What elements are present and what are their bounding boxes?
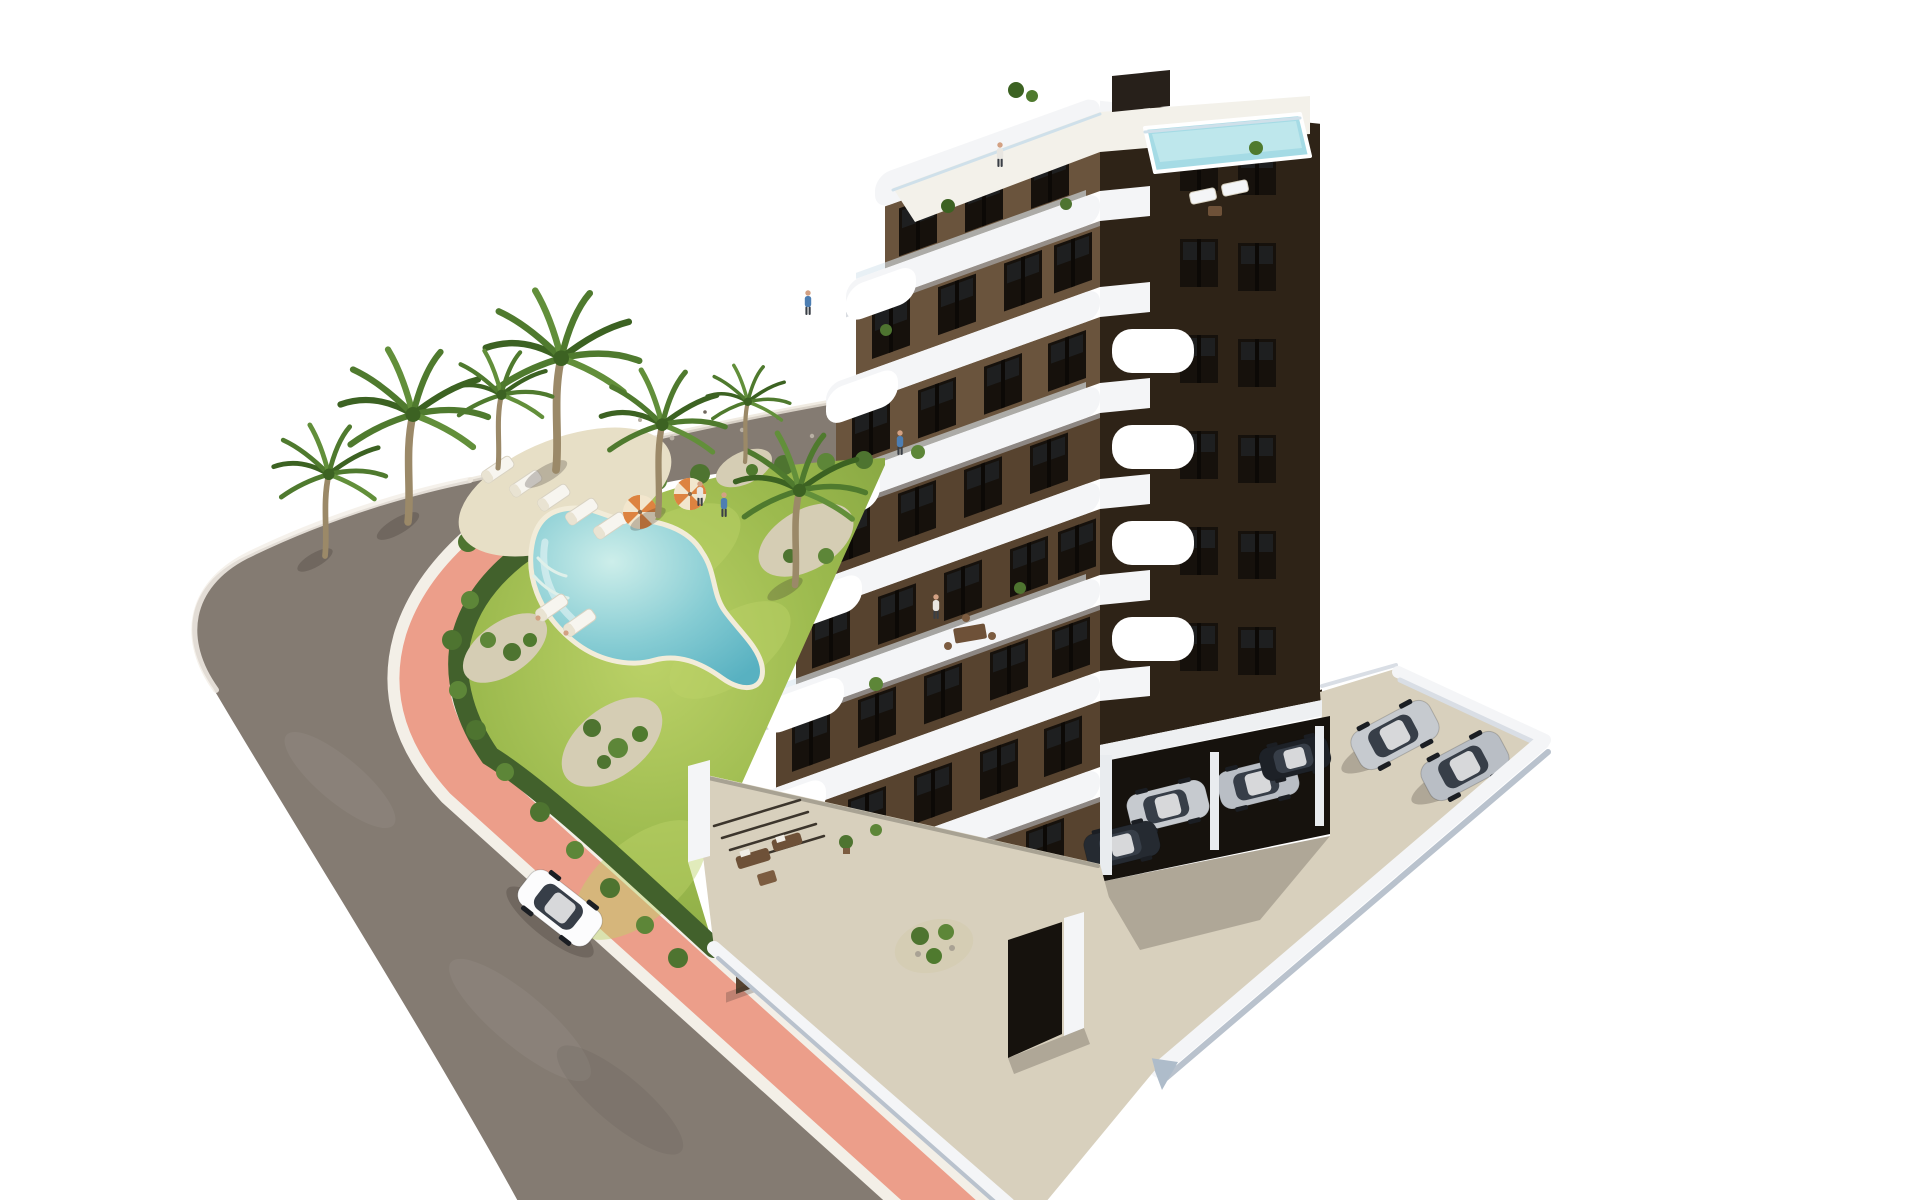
terrace-chair <box>944 642 952 650</box>
roof-equipment-box <box>1112 70 1170 112</box>
entrance-gate <box>1008 922 1062 1058</box>
sunbather-head <box>535 615 540 620</box>
slab-return <box>1100 570 1150 605</box>
render-canvas: Aerial 3D rendering of a modern eight-st… <box>0 0 1920 1200</box>
side-window <box>1238 243 1276 291</box>
slab-return <box>1100 186 1150 221</box>
roof-plant <box>1060 198 1072 210</box>
side-wall-slab <box>1320 70 1398 690</box>
plant-pot <box>843 848 850 854</box>
balcony-plant <box>880 324 892 336</box>
rock <box>915 951 921 957</box>
curved-side-balcony <box>1112 521 1194 565</box>
terrace-parapet <box>782 303 840 346</box>
balcony-plant <box>911 445 925 459</box>
curved-side-balcony <box>1112 617 1194 661</box>
side-window <box>1238 627 1276 675</box>
side-window <box>1180 239 1218 287</box>
gate-pillar <box>1064 912 1084 1036</box>
roof-table <box>1208 206 1222 216</box>
side-window <box>1238 339 1276 387</box>
terrace-side-wall <box>688 760 710 862</box>
side-wall-edge-light <box>1320 80 1326 686</box>
slab-return <box>1100 666 1150 701</box>
rock <box>949 945 955 951</box>
slab-return <box>1100 282 1150 317</box>
potted-plant <box>870 824 882 836</box>
curved-side-balcony <box>1112 329 1194 373</box>
potted-plant <box>839 835 853 849</box>
terrace-chair <box>962 614 970 622</box>
balcony-plant <box>869 677 883 691</box>
roof-plant <box>941 199 955 213</box>
balcony-plant <box>1014 582 1026 594</box>
garage-column <box>1315 726 1324 826</box>
right-facade <box>1100 88 1322 745</box>
side-window <box>1238 531 1276 579</box>
roof-plant <box>1249 141 1263 155</box>
person-terrace <box>805 290 811 315</box>
slab-return <box>1100 378 1150 413</box>
slab-return <box>1100 474 1150 509</box>
terrace-chair <box>988 632 996 640</box>
roof-plant <box>1026 90 1038 102</box>
garage-column <box>1210 752 1219 850</box>
scene-render: Aerial 3D rendering of a modern eight-st… <box>0 0 1920 1200</box>
roof-plant <box>1008 82 1024 98</box>
side-window <box>1238 435 1276 483</box>
garage-pier <box>1100 755 1112 875</box>
curved-side-balcony <box>1112 425 1194 469</box>
sunbather-head <box>563 630 568 635</box>
